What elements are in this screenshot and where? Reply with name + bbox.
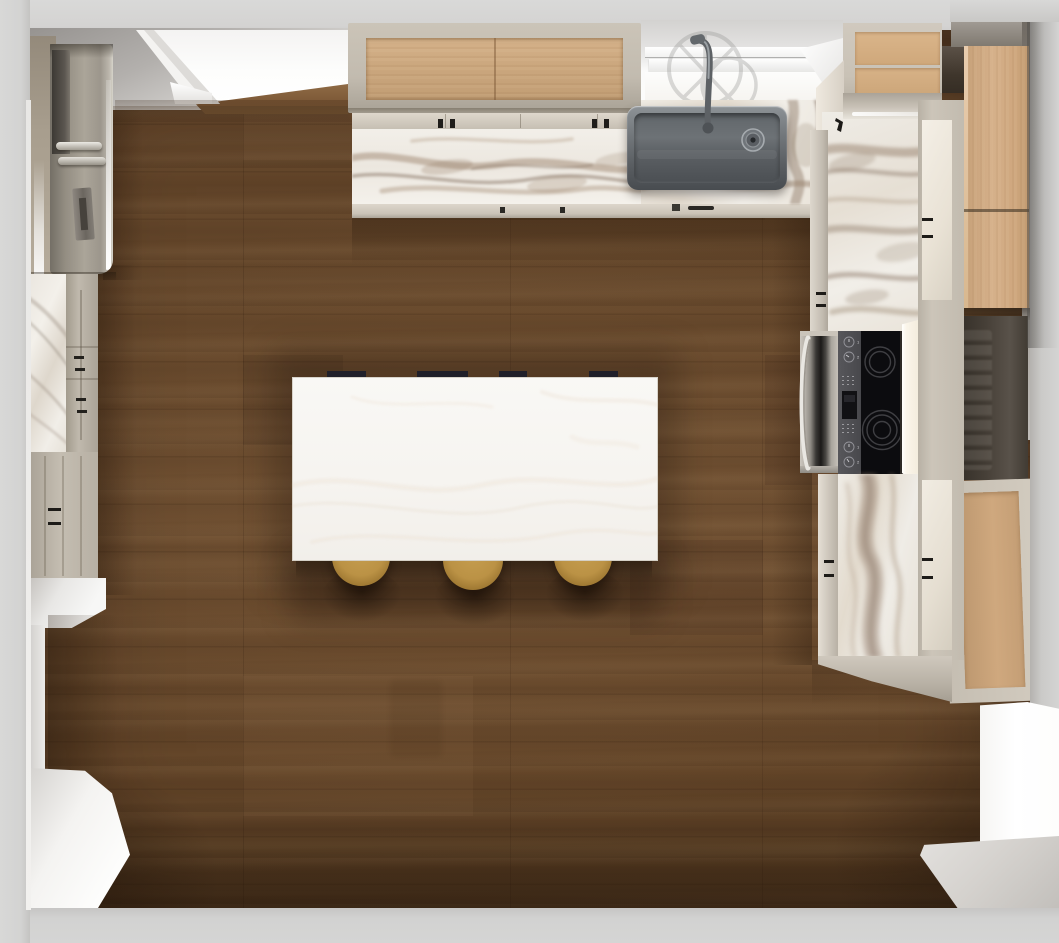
svg-text:2: 2 [857,460,860,465]
svg-text:2: 2 [857,355,860,360]
svg-text:1: 1 [857,445,860,450]
svg-text:1: 1 [857,340,860,345]
